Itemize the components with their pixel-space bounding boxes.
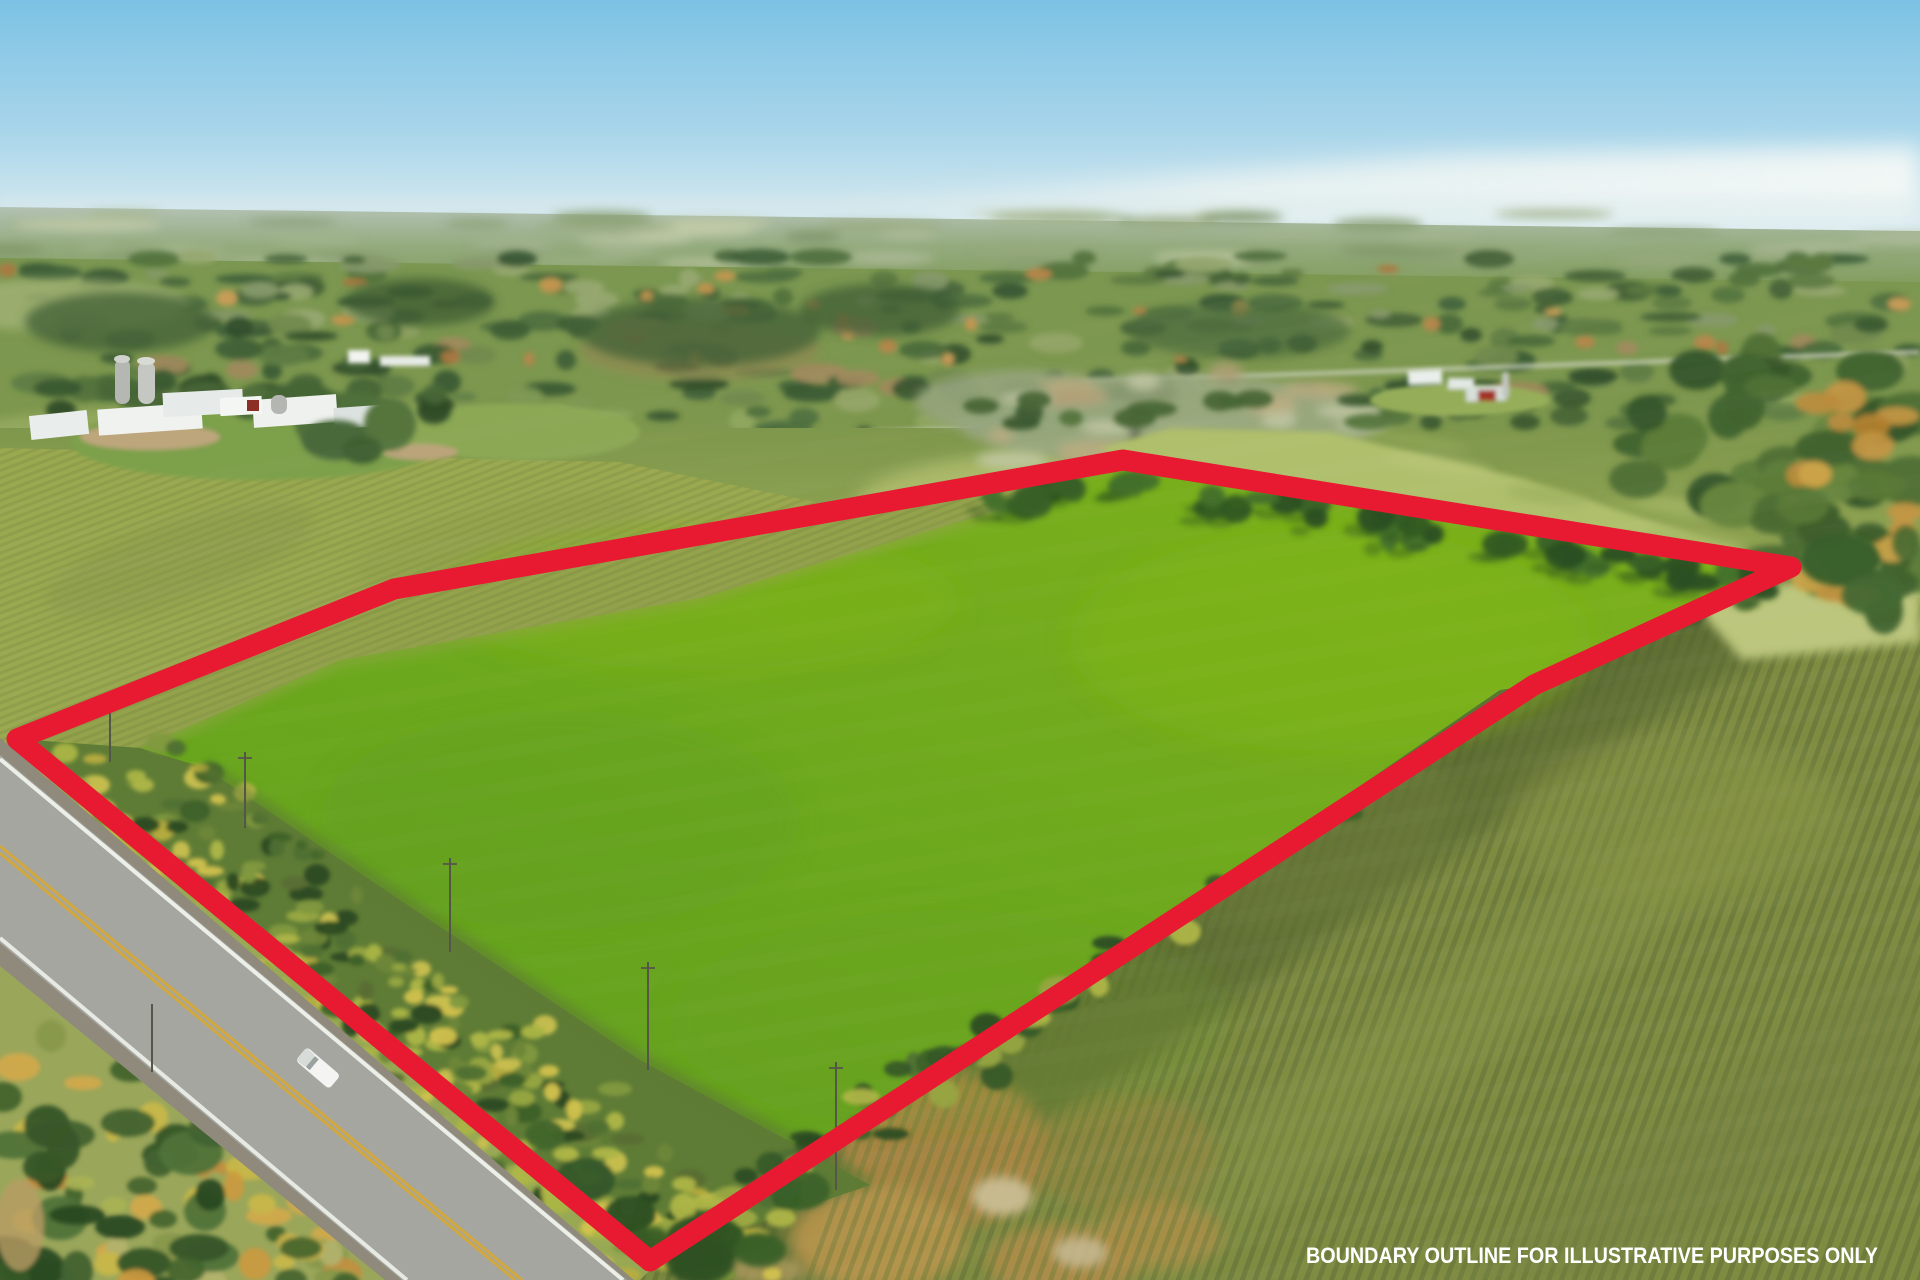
- svg-text:BOUNDARY OUTLINE FOR ILLUSTRAT: BOUNDARY OUTLINE FOR ILLUSTRATIVE PURPOS…: [1306, 1243, 1878, 1268]
